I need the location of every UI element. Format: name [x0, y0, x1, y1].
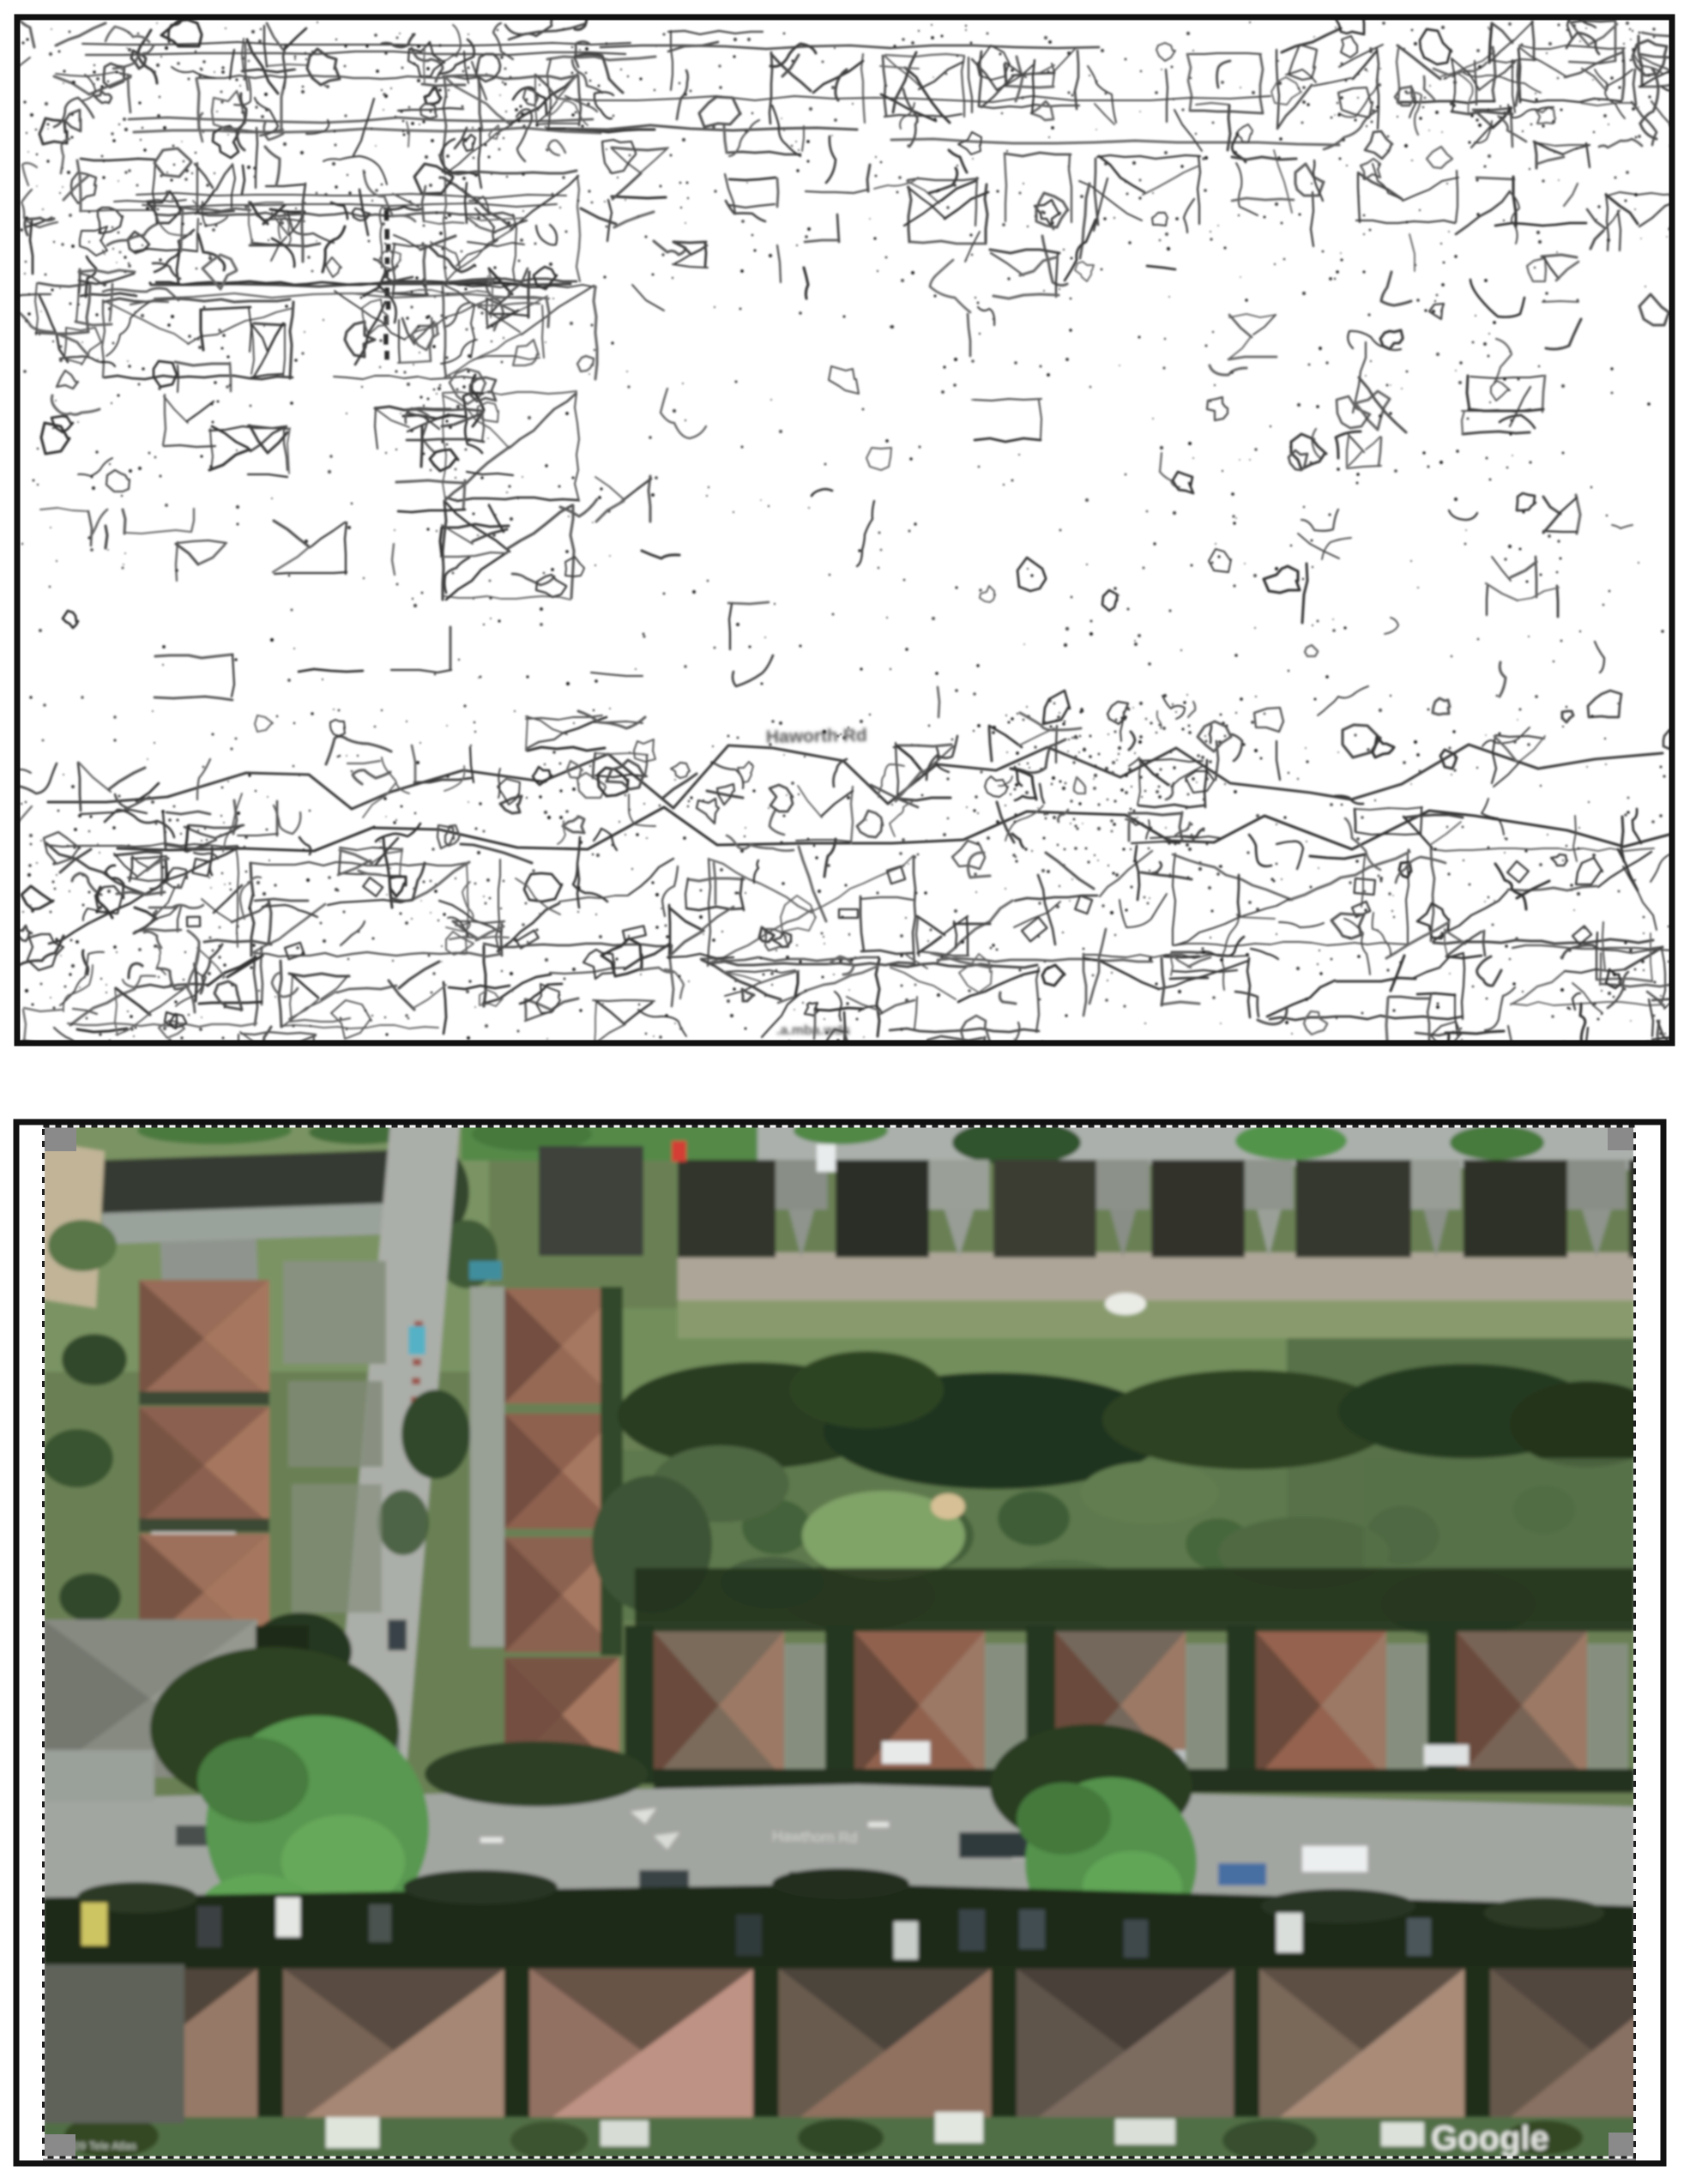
svg-text:Google: Google [1431, 2120, 1549, 2157]
svg-text:Hawthorn Rd: Hawthorn Rd [772, 1828, 858, 1846]
svg-text:Haworth Rd: Haworth Rd [766, 726, 867, 747]
